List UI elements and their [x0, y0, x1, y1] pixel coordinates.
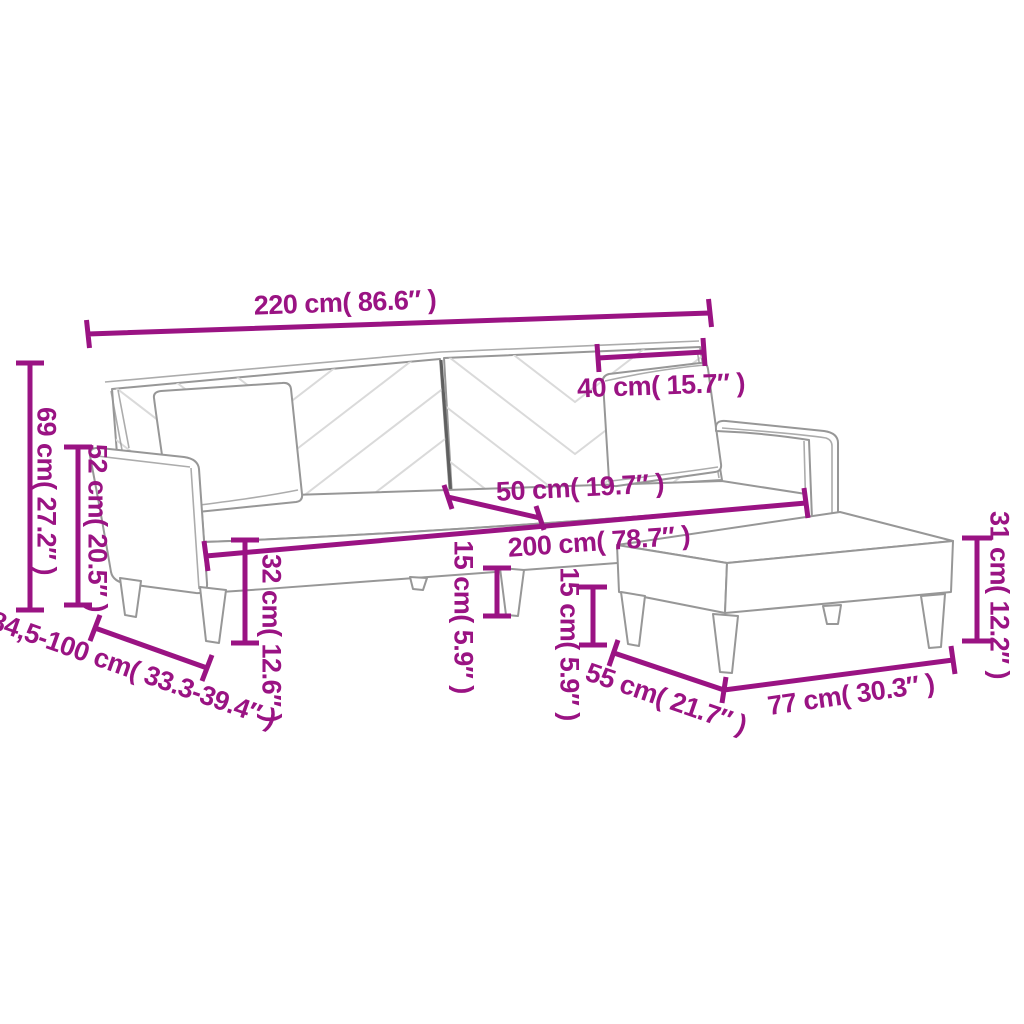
dim-label-footstool-height: 31 cm( 12.2″ ): [986, 511, 1013, 679]
dim-label-footstool-leg-height: 15 cm( 5.9″ ): [556, 567, 583, 721]
dim-label-armrest-height: 52 cm( 20.5″ ): [84, 444, 111, 612]
dim-label-cushion-width: 40 cm( 15.7″ ): [577, 370, 746, 403]
dim-label-sofa-leg-height: 15 cm( 5.9″ ): [450, 540, 477, 694]
furniture-line-art: [0, 0, 1024, 1024]
dim-label-total-height: 69 cm( 27.2″ ): [33, 407, 60, 575]
dimension-diagram: 220 cm( 86.6″ ) 40 cm( 15.7″ ) 69 cm( 27…: [0, 0, 1024, 1024]
dim-label-seat-height: 32 cm( 12.6″ ): [258, 554, 285, 722]
dim-label-sofa-width: 220 cm( 86.6″ ): [253, 286, 436, 319]
